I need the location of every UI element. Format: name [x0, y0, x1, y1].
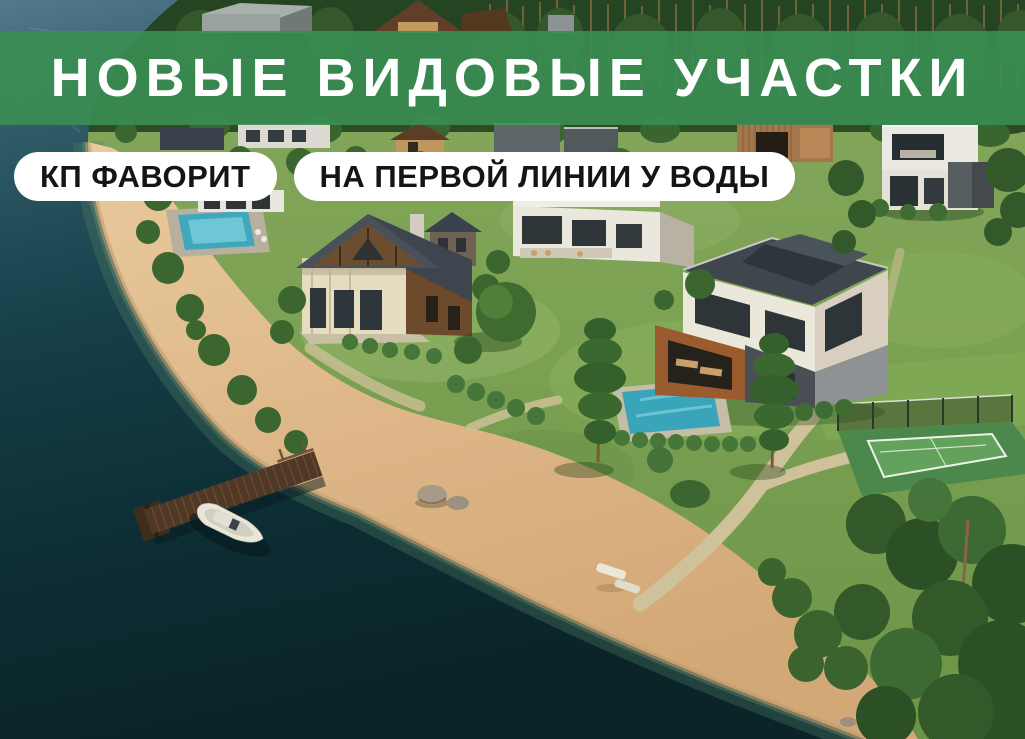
badge-project-name-label: КП ФАВОРИТ — [40, 159, 251, 195]
ad-creative: НОВЫЕ ВИДОВЫЕ УЧАСТКИ КП ФАВОРИТ НА ПЕРВ… — [0, 0, 1025, 739]
headline-text: НОВЫЕ ВИДОВЫЕ УЧАСТКИ — [51, 47, 975, 109]
badge-row: КП ФАВОРИТ НА ПЕРВОЙ ЛИНИИ У ВОДЫ — [14, 152, 795, 201]
badge-location-label: НА ПЕРВОЙ ЛИНИИ У ВОДЫ — [320, 159, 770, 195]
right-tree-cluster — [834, 478, 1025, 739]
headline-banner: НОВЫЕ ВИДОВЫЕ УЧАСТКИ — [0, 31, 1025, 125]
badge-project-name: КП ФАВОРИТ — [14, 152, 277, 201]
badge-location: НА ПЕРВОЙ ЛИНИИ У ВОДЫ — [294, 152, 796, 201]
